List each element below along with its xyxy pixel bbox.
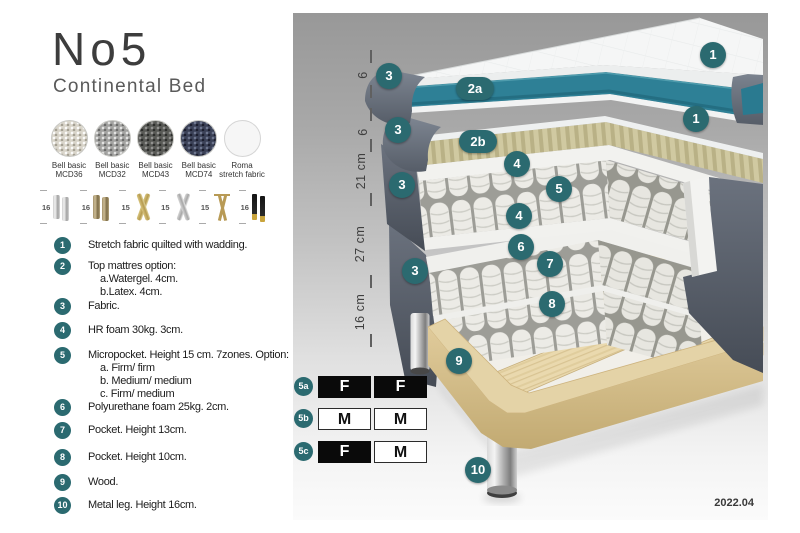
version-stamp: 2022.04 bbox=[714, 497, 754, 509]
ruler-tick bbox=[370, 85, 372, 98]
diagram-panel: 6 6 21 cm 27 cm 16 cm 1 1 2a 2b 3 3 3 3 … bbox=[293, 13, 768, 520]
callout-4-hr-foam: 4 bbox=[506, 203, 532, 229]
callout-3-fabric: 3 bbox=[402, 258, 428, 284]
callout-5-micropocket: 5 bbox=[546, 176, 572, 202]
dim-middle-mattress: 21 cm bbox=[354, 143, 368, 199]
ruler-tick bbox=[370, 334, 372, 347]
info-column: No5 Continental Bed Bell basicMCD36 Bell… bbox=[0, 0, 293, 533]
ruler-tick bbox=[370, 108, 372, 121]
dim-leg-height: 16 cm bbox=[353, 284, 367, 340]
dim-top-mattress: 6 bbox=[356, 47, 370, 103]
dim-lower-mattress: 27 cm bbox=[353, 216, 367, 272]
ruler-tick bbox=[370, 275, 372, 288]
ruler-tick bbox=[370, 139, 372, 152]
callout-2b-latex: 2b bbox=[459, 130, 497, 153]
firmness-cell: F bbox=[318, 441, 371, 463]
callout-3-fabric: 3 bbox=[376, 63, 402, 89]
product-sheet: No5 Continental Bed Bell basicMCD36 Bell… bbox=[0, 0, 800, 533]
metal-leg-back bbox=[411, 313, 430, 375]
feature-list: 1 Stretch fabric quilted with wadding. 2… bbox=[0, 0, 293, 533]
firmness-cell: F bbox=[318, 376, 371, 398]
firmness-cell: M bbox=[374, 441, 427, 463]
ruler-tick bbox=[370, 50, 372, 63]
firmness-cell: M bbox=[374, 408, 427, 430]
firmness-cell: F bbox=[374, 376, 427, 398]
callout-6-polyurethane: 6 bbox=[508, 234, 534, 260]
callout-2a-watergel: 2a bbox=[456, 77, 494, 100]
callout-10-metal-leg: 10 bbox=[465, 457, 491, 483]
callout-1-stretch-fabric: 1 bbox=[683, 106, 709, 132]
callout-1-stretch-fabric: 1 bbox=[700, 42, 726, 68]
callout-4-hr-foam: 4 bbox=[504, 151, 530, 177]
firmness-cell: M bbox=[318, 408, 371, 430]
ruler-tick bbox=[370, 193, 372, 206]
callout-3-fabric: 3 bbox=[389, 172, 415, 198]
callout-8-pocket10: 8 bbox=[539, 291, 565, 317]
callout-3-fabric: 3 bbox=[385, 117, 411, 143]
callout-9-wood: 9 bbox=[446, 348, 472, 374]
callout-7-pocket13: 7 bbox=[537, 251, 563, 277]
